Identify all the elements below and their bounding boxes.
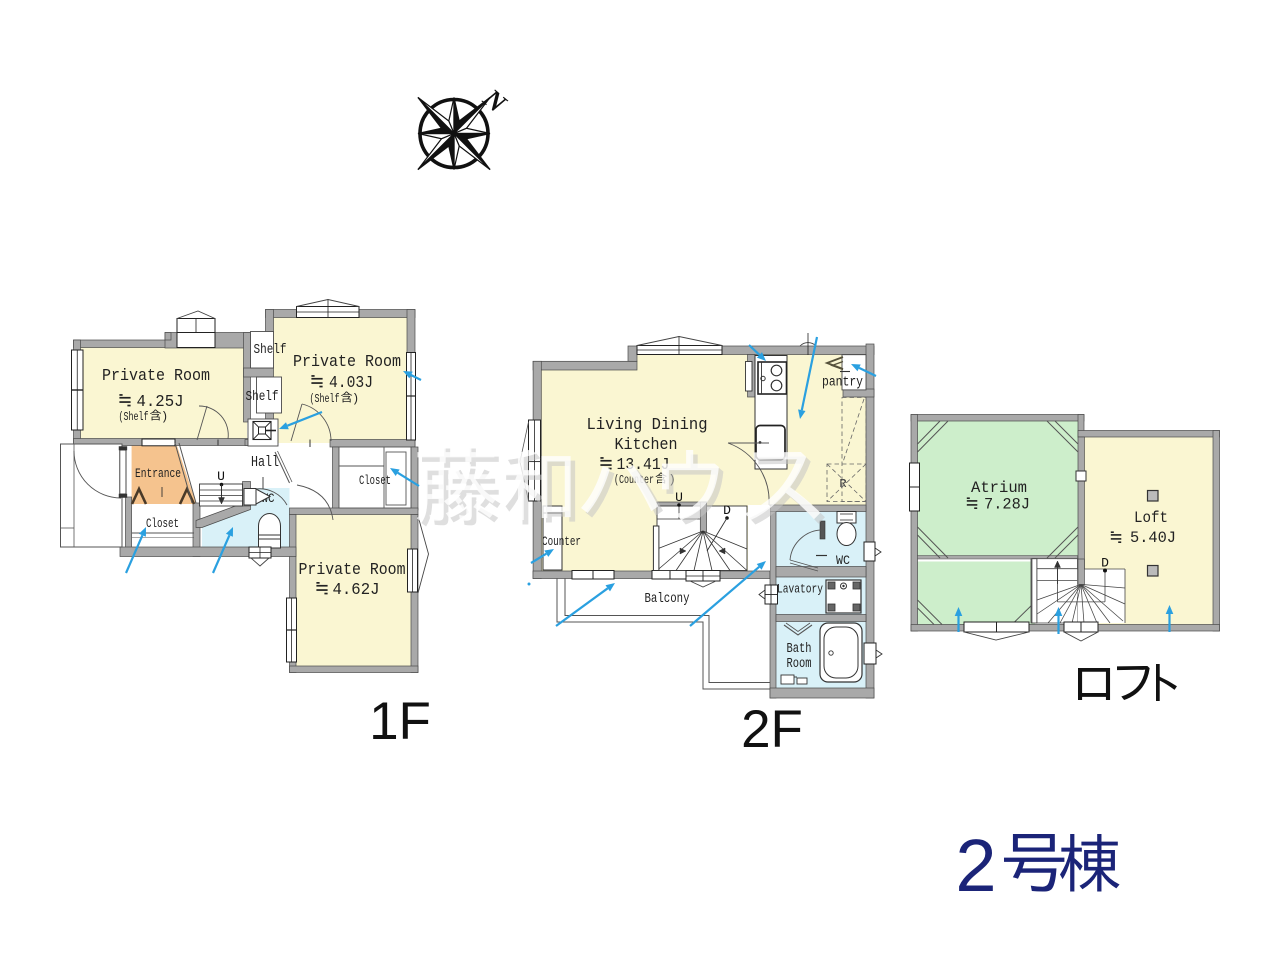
svg-text:pantry: pantry — [822, 376, 863, 391]
svg-text:2: 2 — [955, 824, 996, 907]
svg-text:Kitchen: Kitchen — [615, 436, 678, 455]
svg-text:Room: Room — [787, 657, 812, 672]
svg-text:Atrium: Atrium — [971, 479, 1027, 497]
svg-text:Entrance: Entrance — [135, 466, 181, 481]
svg-text:4.62J: 4.62J — [333, 581, 380, 600]
svg-text:(Shelf: (Shelf — [310, 392, 340, 406]
svg-text:D: D — [723, 503, 731, 518]
svg-text:4.03J: 4.03J — [329, 374, 373, 393]
svg-text:Lavatory: Lavatory — [777, 582, 823, 597]
svg-text:7.28J: 7.28J — [984, 496, 1030, 514]
svg-text:WC: WC — [836, 553, 850, 568]
svg-text:U: U — [217, 469, 225, 484]
svg-text:Living Dining: Living Dining — [587, 416, 708, 435]
svg-text:Counter: Counter — [542, 534, 581, 549]
svg-text:Private Room: Private Room — [293, 353, 401, 372]
svg-text:1F: 1F — [369, 692, 431, 751]
svg-text:): ) — [352, 392, 359, 406]
svg-text:D: D — [1101, 556, 1109, 571]
svg-text:Shelf: Shelf — [254, 343, 287, 358]
svg-text:R: R — [839, 477, 846, 491]
svg-text:Private Room: Private Room — [299, 561, 406, 580]
svg-text:Loft: Loft — [1134, 509, 1168, 527]
svg-text:Closet: Closet — [146, 516, 179, 531]
svg-text:Closet: Closet — [359, 473, 391, 488]
svg-text:Bath: Bath — [787, 642, 812, 657]
svg-text:2F: 2F — [741, 700, 803, 759]
svg-text:Shelf: Shelf — [246, 390, 279, 405]
svg-text:(Shelf: (Shelf — [119, 410, 149, 424]
svg-text:Private Room: Private Room — [102, 367, 210, 386]
svg-text:Hall: Hall — [251, 454, 279, 471]
svg-text:U: U — [675, 490, 683, 505]
svg-text:): ) — [161, 410, 168, 424]
svg-text:5.40J: 5.40J — [1130, 529, 1176, 547]
svg-text:Balcony: Balcony — [645, 591, 690, 607]
